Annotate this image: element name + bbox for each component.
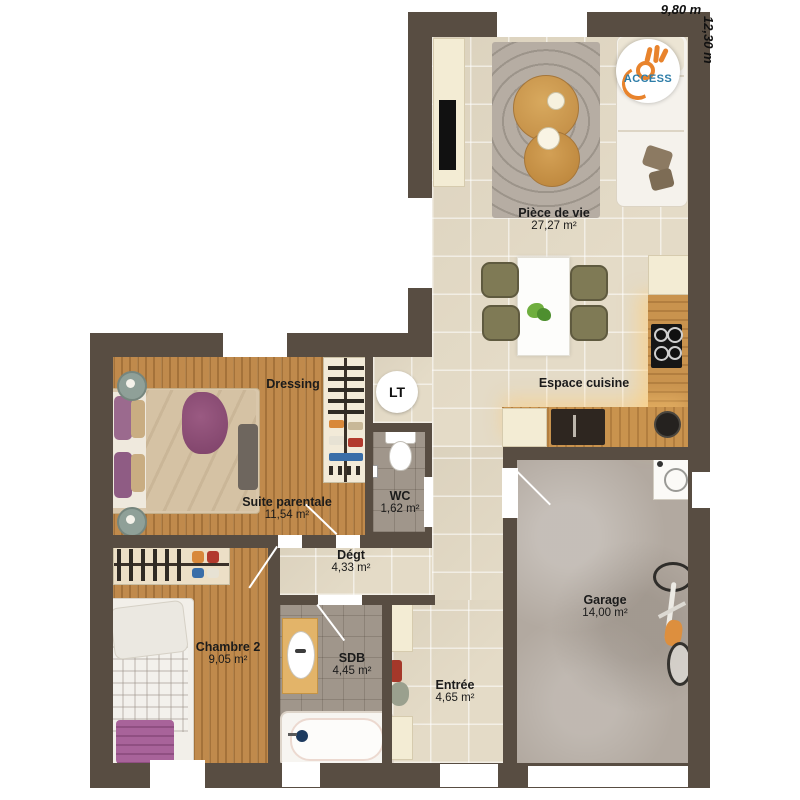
vanity-sink [287, 631, 315, 679]
door-gap-wc [424, 477, 433, 527]
door-gap-bedroom2 [278, 535, 302, 548]
sink-faucet-icon [295, 649, 306, 653]
room-area: 4,45 m² [333, 665, 372, 678]
entry-cabinet-1 [390, 604, 413, 652]
room-name: Dressing [266, 377, 320, 391]
candle-decor-1 [547, 92, 565, 110]
burner-icon [654, 328, 668, 342]
door-gap-bathroom [318, 595, 362, 605]
bathtub [280, 711, 394, 768]
tv-screen [439, 100, 456, 170]
room-area: 1,62 m² [381, 503, 420, 516]
burner-icon [667, 327, 683, 343]
kitchen-cabinet-bottom [502, 408, 547, 447]
room-name: Espace cuisine [539, 376, 629, 390]
bedroom2-blanket [116, 720, 174, 764]
sofa-seam-2 [618, 130, 684, 132]
dining-chair [481, 262, 519, 298]
burner-icon [654, 346, 669, 361]
window-bedroom2 [150, 760, 205, 789]
logo-brand-text: ACCESS [616, 73, 680, 85]
entry-cabinet-2 [390, 716, 413, 760]
entry-door [440, 764, 498, 787]
room-label-dressing: Dressing [266, 377, 320, 391]
folded-clothes-icon [192, 568, 204, 578]
room-name: Chambre 2 [196, 640, 261, 654]
kettle-appliance [654, 411, 681, 438]
shoe-row-icon [329, 466, 363, 475]
room-name: WC [381, 489, 420, 503]
folded-clothes-icon [207, 551, 219, 563]
wall-living-left [408, 12, 432, 357]
hanging-clothes-icon [117, 549, 187, 581]
burner-icon [668, 346, 682, 360]
wall-wc-top [365, 423, 432, 432]
wall-left [90, 333, 113, 788]
lamp-icon [126, 515, 135, 524]
lt-water-heater-marker: LT [376, 371, 418, 413]
door-gap-master [336, 535, 360, 548]
cooktop [651, 324, 682, 368]
kitchen-cabinet-top [648, 255, 690, 295]
room-area: 27,27 m² [518, 220, 590, 233]
room-area: 4,33 m² [332, 562, 371, 575]
wall-bathroom-right [382, 600, 392, 763]
window-master-top [223, 327, 287, 357]
room-name: Suite parentale [242, 495, 332, 509]
kitchen-sink [551, 409, 605, 445]
door-garage-side [502, 468, 518, 518]
room-name: Garage [582, 593, 627, 607]
toilet-bowl [389, 441, 412, 471]
floor-plan: Pièce de vie 27,27 m² Espace cuisine Dre… [0, 0, 800, 800]
pillow-tan-2 [131, 454, 145, 492]
purple-throw [182, 392, 228, 454]
room-label-suite-parentale: Suite parentale 11,54 m² [242, 495, 332, 523]
room-label-degagement: Dégt 4,33 m² [332, 548, 371, 576]
dining-chair [482, 305, 520, 341]
room-name: SDB [333, 651, 372, 665]
entry-plant [389, 682, 409, 706]
dimension-height: 12,30 m [701, 16, 716, 64]
bedroom2-pillow [109, 600, 189, 661]
folded-clothes-icon [329, 420, 344, 428]
room-area: 9,05 m² [196, 654, 261, 667]
room-area: 11,54 m² [242, 509, 332, 522]
wall-bedroom2-right [268, 548, 280, 763]
room-label-piece-de-vie: Pièce de vie 27,27 m² [518, 206, 590, 234]
nightstand-2 [117, 507, 147, 537]
window-bathroom [282, 762, 320, 787]
bedroom2-wardrobe [113, 545, 230, 585]
room-label-garage: Garage 14,00 m² [582, 593, 627, 621]
bathroom-vanity [282, 618, 318, 694]
pillow-tan-1 [131, 400, 145, 438]
tub-handle-icon [288, 733, 297, 736]
hanging-clothes-icon [328, 362, 364, 414]
window-garage-right [692, 472, 711, 508]
tub-faucet-icon [296, 730, 308, 742]
room-name: Dégt [332, 548, 371, 562]
washer-door-icon [664, 468, 688, 492]
folded-clothes-icon [192, 551, 204, 563]
folded-clothes-icon [207, 568, 219, 578]
folded-clothes-icon [348, 422, 363, 430]
logo-finger-icon [644, 47, 653, 64]
lamp-icon [126, 379, 135, 388]
folded-clothes-icon [348, 438, 363, 447]
candle-decor-2 [537, 127, 560, 150]
wall-wc-left [365, 355, 373, 542]
access-logo: ACCESS [616, 39, 680, 103]
dressing-wardrobe [323, 357, 369, 483]
wall-wc-bottom [365, 532, 432, 542]
bed-end-bench [238, 424, 258, 490]
folded-clothes-icon [329, 436, 344, 445]
room-label-entree: Entrée 4,65 m² [436, 678, 475, 706]
window-living-top [497, 5, 587, 37]
dimension-width: 9,80 m [661, 2, 701, 17]
room-label-chambre2: Chambre 2 9,05 m² [196, 640, 261, 668]
pillow-purple-2 [114, 452, 132, 498]
room-area: 4,65 m² [436, 692, 475, 705]
room-name: Pièce de vie [518, 206, 590, 220]
room-label-wc: WC 1,62 m² [381, 489, 420, 517]
table-plant-leaf [537, 308, 551, 321]
dining-chair [570, 305, 608, 341]
room-label-sdb: SDB 4,45 m² [333, 651, 372, 679]
window-living-left [403, 198, 432, 288]
wall-right [688, 12, 710, 788]
logo-finger-icon [658, 48, 669, 64]
nightstand-1 [117, 371, 147, 401]
room-name: Entrée [436, 678, 475, 692]
dining-chair [570, 265, 608, 301]
washer-dial-icon [657, 461, 663, 467]
pillow-purple-1 [114, 396, 132, 440]
wall-kitchen-bottom [503, 447, 710, 460]
sink-faucet-icon [573, 415, 576, 437]
garage-door [528, 766, 688, 787]
room-label-espace-cuisine: Espace cuisine [539, 376, 629, 390]
folded-clothes-icon [329, 453, 363, 461]
room-area: 14,00 m² [582, 607, 627, 620]
